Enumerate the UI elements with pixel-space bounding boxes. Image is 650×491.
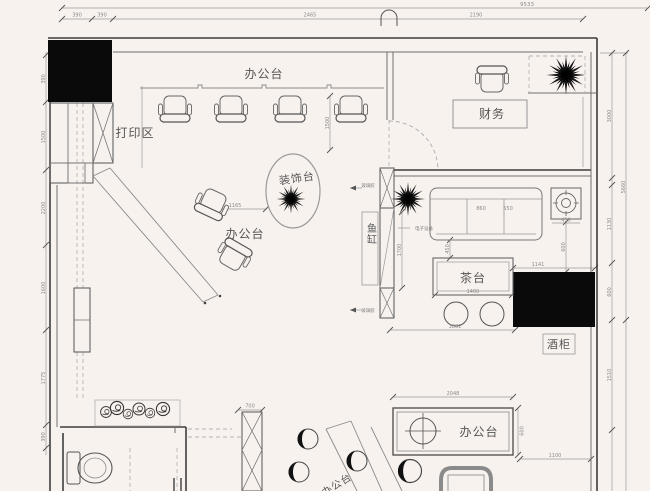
dim-tea-b: 1801 bbox=[449, 324, 462, 330]
small-plant-icon bbox=[110, 401, 123, 414]
dim-mid: 1165 bbox=[229, 203, 242, 209]
dim-top-total: 9533 bbox=[520, 2, 534, 8]
sofa bbox=[430, 188, 542, 240]
section-mark bbox=[381, 10, 397, 26]
dim-box-w: 1141 bbox=[532, 262, 545, 268]
bar-stool bbox=[347, 451, 368, 471]
desk-lamp-cross bbox=[405, 413, 441, 449]
dim-right-3: 600 bbox=[607, 287, 613, 297]
small-plant-icon bbox=[145, 408, 155, 418]
bar-stool bbox=[289, 462, 310, 482]
side-table-cross bbox=[553, 190, 579, 216]
office-chair bbox=[274, 96, 307, 122]
dim-desk-r: 1100 bbox=[549, 453, 562, 459]
note-glass-bottom: 玻璃胶 bbox=[361, 307, 375, 314]
sofa-cushion-lines bbox=[430, 199, 542, 234]
wall-lines-dark bbox=[48, 38, 597, 491]
label-office-desk-top: 办公台 bbox=[244, 66, 283, 81]
label-office-desk-mid: 办公台 bbox=[225, 226, 264, 241]
label-office-desk-bottom: 办公台 bbox=[319, 470, 354, 491]
leader-arrow bbox=[350, 308, 356, 313]
reception-diagonal-desk: 办公台 1165 bbox=[93, 168, 265, 304]
sofa-lounge: 860 550 450 600 450 bbox=[391, 182, 581, 254]
dim-left-3: 2200 bbox=[41, 202, 47, 215]
dim-sofa-a: 860 bbox=[476, 206, 486, 212]
dim-right-outer: 5660 bbox=[621, 181, 627, 194]
floor-plan-canvas: 9533 390 390 2465 2190 390 1500 2200 160… bbox=[0, 0, 650, 491]
dim-left-1: 390 bbox=[41, 74, 47, 84]
dim-desk-w: 2048 bbox=[447, 391, 460, 397]
dim-left-2: 1500 bbox=[41, 131, 47, 144]
dim-top-s3: 2465 bbox=[304, 13, 317, 19]
tea-stool bbox=[480, 302, 504, 326]
small-plant-icon bbox=[156, 402, 169, 415]
door-track-marks bbox=[174, 478, 181, 491]
dim-tea-w: 1400 bbox=[467, 289, 480, 295]
dim-dot bbox=[204, 302, 207, 305]
print-cabinet-notch bbox=[68, 163, 85, 183]
dim-fish-v: 1700 bbox=[397, 244, 403, 257]
small-plant-icon bbox=[123, 409, 133, 419]
small-plant-icon bbox=[133, 403, 145, 415]
desk-edge-stepped bbox=[140, 85, 384, 88]
dim-col: 700 bbox=[245, 404, 255, 410]
floor-plan-drawing: 9533 390 390 2465 2190 390 1500 2200 160… bbox=[0, 0, 650, 491]
label-fish-tank: 鱼缸 bbox=[365, 222, 377, 245]
black-mask-top-left bbox=[48, 40, 112, 102]
toilet-bowl-inner bbox=[84, 458, 106, 478]
office-chair bbox=[159, 96, 192, 122]
dim-side-h: 600 bbox=[561, 242, 567, 252]
dim-right-2: 1130 bbox=[607, 218, 613, 231]
office-chair bbox=[215, 96, 248, 122]
fish-tank-wall: 鱼缸 1700 玻璃胶 玻璃胶 电子设备 bbox=[350, 168, 433, 318]
label-print-area: 打印区 bbox=[115, 126, 154, 140]
dim-desk-h: 600 bbox=[520, 426, 526, 436]
plant-icon bbox=[546, 55, 585, 94]
office-chair bbox=[213, 236, 255, 275]
bathroom bbox=[67, 400, 180, 484]
tea-stool bbox=[444, 302, 468, 326]
column-bottom bbox=[242, 412, 262, 491]
fish-tank-diagonal bbox=[380, 208, 394, 288]
label-finance: 财务 bbox=[479, 106, 505, 121]
print-cabinet bbox=[50, 103, 93, 183]
label-wine-cabinet: 酒柜 bbox=[547, 338, 571, 351]
note-glass-top: 玻璃胶 bbox=[361, 182, 375, 189]
dim-left-6: 390 bbox=[41, 432, 47, 442]
black-mask-right bbox=[513, 272, 595, 327]
leader-arrow bbox=[350, 186, 356, 191]
dim-top-s4: 2190 bbox=[470, 13, 483, 19]
dim-top-s1: 390 bbox=[72, 13, 82, 19]
diagonal-desk-lines bbox=[93, 168, 218, 302]
door-arc bbox=[389, 121, 438, 170]
wine-cabinet: 酒柜 bbox=[543, 334, 575, 354]
dim-right-1: 3000 bbox=[607, 110, 613, 123]
office-chair bbox=[192, 185, 233, 223]
note-electronic: 电子设备 bbox=[415, 225, 433, 232]
bar-stool bbox=[298, 429, 319, 449]
office-chair bbox=[335, 96, 368, 122]
dim-side-w: 450 bbox=[561, 218, 571, 224]
bottom-bar-area: 700 办公台 bbox=[242, 404, 422, 491]
walls bbox=[48, 38, 597, 491]
toilet-bowl bbox=[78, 453, 112, 483]
print-area: 打印区 bbox=[50, 103, 155, 183]
workstations-top: 办公台 1500 bbox=[140, 66, 384, 129]
side-table-ring-outer bbox=[556, 193, 576, 213]
dim-left-5: 1775 bbox=[41, 372, 47, 385]
dim-top-s2: 390 bbox=[97, 13, 107, 19]
dim-chairs-v: 1500 bbox=[325, 117, 331, 130]
label-tea-table: 茶台 bbox=[460, 270, 486, 285]
dim-left-4: 1600 bbox=[41, 282, 47, 295]
dim-sofa-b: 550 bbox=[503, 206, 513, 212]
bar-stool bbox=[398, 460, 422, 483]
left-pier bbox=[74, 288, 90, 352]
manager-chair-seat bbox=[448, 475, 484, 491]
dim-dot bbox=[219, 295, 222, 298]
plant-icon bbox=[391, 182, 425, 216]
decor-table: 装饰台 bbox=[266, 154, 320, 228]
label-office-desk-right: 办公台 bbox=[459, 424, 498, 439]
dim-gap: 450 bbox=[445, 244, 451, 254]
plant-icon bbox=[277, 185, 306, 214]
side-table-ring-inner bbox=[562, 199, 571, 208]
small-plant-icon bbox=[101, 407, 112, 418]
finance-room: 财务 bbox=[453, 55, 586, 128]
dim-right-4: 1510 bbox=[607, 369, 613, 382]
office-chair bbox=[476, 66, 509, 92]
label-decor-table: 装饰台 bbox=[278, 169, 316, 188]
